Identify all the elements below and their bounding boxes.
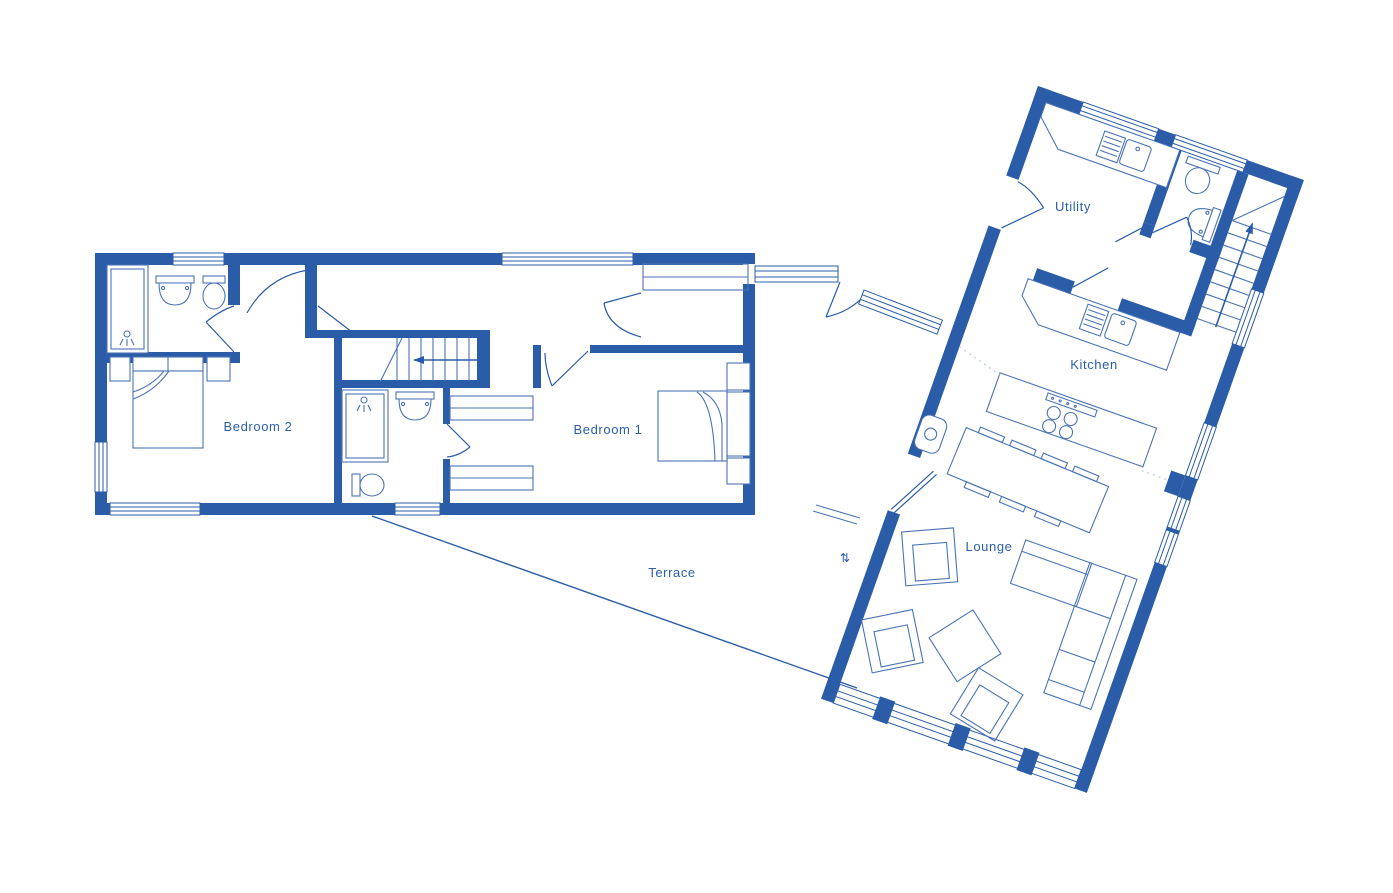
room-label-lounge: Lounge bbox=[966, 539, 1013, 554]
room-label-terrace: Terrace bbox=[648, 565, 696, 580]
headboard bbox=[727, 392, 750, 456]
nightstand bbox=[727, 363, 750, 390]
armchair-icon bbox=[861, 610, 923, 673]
terrace: Terrace ⇅ bbox=[372, 505, 860, 688]
nightstand bbox=[110, 357, 130, 381]
door-swing-icon: ⇅ bbox=[840, 551, 850, 565]
glazed-link bbox=[755, 266, 942, 334]
double-bed-icon bbox=[133, 357, 203, 448]
nightstand bbox=[207, 357, 230, 381]
double-bed-icon bbox=[658, 391, 727, 461]
room-label-bedroom-2: Bedroom 2 bbox=[224, 419, 293, 434]
sink-icon bbox=[156, 276, 194, 305]
shower-icon bbox=[107, 265, 148, 353]
floor-plan-drawing: Bedroom 2 bbox=[0, 0, 1393, 893]
room-label-kitchen: Kitchen bbox=[1070, 357, 1118, 372]
link-glazing bbox=[859, 290, 943, 334]
east-wing-walls bbox=[821, 86, 1304, 793]
toilet-icon bbox=[352, 474, 384, 496]
coffee-table-icon bbox=[929, 610, 1001, 682]
staircase-west bbox=[380, 338, 478, 382]
floor-plan-page: Bedroom 2 bbox=[0, 0, 1393, 893]
nightstand bbox=[727, 458, 750, 484]
bedroom-1: Bedroom 1 bbox=[545, 293, 750, 484]
link-door bbox=[826, 282, 840, 317]
toilet-icon bbox=[203, 276, 225, 309]
family-bathroom bbox=[342, 390, 470, 496]
east-wing bbox=[820, 86, 1303, 795]
shower-icon bbox=[342, 390, 388, 462]
ensuite-bathroom bbox=[107, 265, 234, 353]
armchair-icon bbox=[902, 528, 958, 586]
room-label-utility: Utility bbox=[1055, 199, 1091, 214]
sink-icon bbox=[396, 392, 434, 420]
terrace-boundary-line bbox=[372, 516, 857, 688]
west-wing: Bedroom 2 bbox=[95, 253, 755, 515]
room-label-bedroom-1: Bedroom 1 bbox=[574, 422, 643, 437]
